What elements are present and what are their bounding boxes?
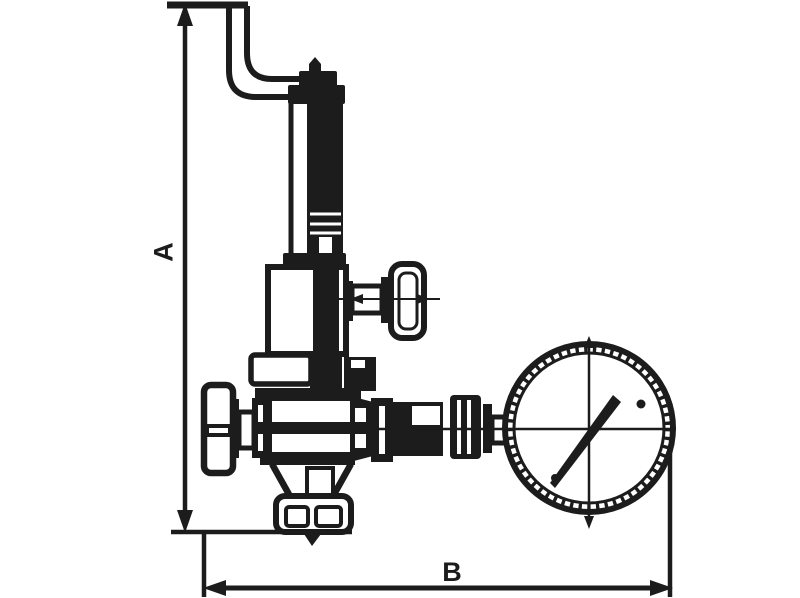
spring-slot [319,237,332,254]
dimension-b-arrow-left-icon [203,580,226,596]
flange-center-block [310,356,342,389]
body-taper-left [272,464,291,498]
handwheel-hub-slit [209,428,228,433]
handwheel-stem [239,412,254,448]
union-body-slot [412,406,440,425]
gauge-centerline-arrow-bottom-icon [584,516,594,529]
flange-left-block [251,355,311,384]
valve-technical-drawing: A B [0,0,800,598]
bottom-spigot-tip [304,534,321,546]
union-nut-slit [457,400,461,454]
bottom-flange [276,496,351,546]
bonnet-flange [251,355,376,391]
dimension-a-arrow-down-icon [177,510,193,533]
valve-body [252,388,373,499]
gauge-cock [338,264,440,338]
union-nut-slit [467,400,471,454]
gauge-set-pointer-dot [637,400,646,409]
handwheel [204,385,254,473]
spring-housing [283,102,346,268]
gauge-needle-counterweight [551,474,559,482]
cap-collar [288,85,345,104]
dimension-b-label: B [442,557,462,587]
dimension-a-label: A [148,242,178,262]
drawing-svg: A B [0,0,800,598]
bonnet [268,265,346,355]
union-nut [450,395,481,459]
bonnet-stem-column [313,265,339,355]
flange-right-slot [351,360,365,368]
